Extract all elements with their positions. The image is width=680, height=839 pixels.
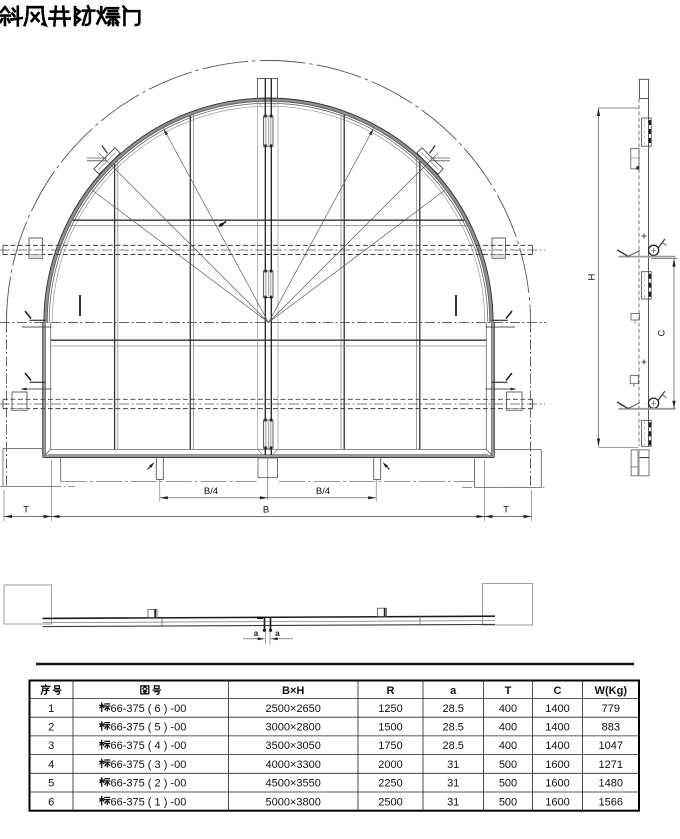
svg-text:1: 1 (48, 703, 54, 715)
svg-text:883: 883 (602, 722, 620, 734)
svg-text:B/4: B/4 (316, 486, 330, 497)
svg-text:400: 400 (499, 703, 517, 715)
svg-text:28.5: 28.5 (442, 703, 463, 715)
svg-text:4000×3300: 4000×3300 (266, 759, 321, 771)
svg-text:5000×3800: 5000×3800 (266, 796, 321, 808)
svg-text:4500×3550: 4500×3550 (266, 778, 321, 790)
svg-text:1400: 1400 (545, 722, 569, 734)
svg-text:3500×3050: 3500×3050 (266, 740, 321, 752)
svg-text:4: 4 (48, 759, 54, 771)
svg-text:B: B (263, 505, 269, 516)
svg-text:3000×2800: 3000×2800 (266, 722, 321, 734)
svg-text:T: T (23, 505, 29, 516)
svg-text:W(Kg): W(Kg) (595, 685, 628, 697)
svg-text:H: H (587, 273, 598, 280)
svg-text:66-375 ( 3 ) -00: 66-375 ( 3 ) -00 (111, 759, 187, 771)
svg-text:T: T (503, 505, 509, 516)
svg-text:1480: 1480 (599, 778, 623, 790)
svg-text:28.5: 28.5 (442, 722, 463, 734)
svg-text:1600: 1600 (545, 778, 569, 790)
svg-text:3: 3 (48, 740, 54, 752)
svg-text:66-375 ( 4 ) -00: 66-375 ( 4 ) -00 (111, 740, 187, 752)
svg-text:31: 31 (447, 759, 459, 771)
svg-text:1750: 1750 (378, 740, 402, 752)
svg-text:400: 400 (499, 722, 517, 734)
svg-text:66-375 ( 2 ) -00: 66-375 ( 2 ) -00 (111, 778, 187, 790)
svg-text:31: 31 (447, 796, 459, 808)
svg-text:66-375 ( 5 ) -00: 66-375 ( 5 ) -00 (111, 722, 187, 734)
svg-text:a: a (450, 685, 457, 697)
svg-text:a: a (275, 629, 280, 638)
svg-text:B×H: B×H (282, 685, 304, 697)
svg-text:1400: 1400 (545, 703, 569, 715)
svg-text:779: 779 (602, 703, 620, 715)
svg-text:T: T (505, 685, 512, 697)
svg-text:500: 500 (499, 796, 517, 808)
svg-text:1250: 1250 (378, 703, 402, 715)
svg-text:2: 2 (48, 722, 54, 734)
svg-text:66-375 ( 1 ) -00: 66-375 ( 1 ) -00 (111, 796, 187, 808)
svg-text:2250: 2250 (378, 778, 402, 790)
svg-text:C: C (554, 685, 562, 697)
svg-text:6: 6 (48, 796, 54, 808)
svg-text:1271: 1271 (599, 759, 623, 771)
svg-text:1500: 1500 (378, 722, 402, 734)
svg-text:400: 400 (499, 740, 517, 752)
svg-text:28.5: 28.5 (442, 740, 463, 752)
svg-text:500: 500 (499, 759, 517, 771)
svg-text:1566: 1566 (599, 796, 623, 808)
svg-text:1600: 1600 (545, 759, 569, 771)
svg-text:5: 5 (48, 778, 54, 790)
svg-text:R: R (387, 685, 395, 697)
svg-text:1600: 1600 (545, 796, 569, 808)
svg-text:2500: 2500 (378, 796, 402, 808)
svg-text:31: 31 (447, 778, 459, 790)
svg-text:B/4: B/4 (204, 486, 218, 497)
svg-text:1047: 1047 (599, 740, 623, 752)
svg-text:66-375 ( 6 ) -00: 66-375 ( 6 ) -00 (111, 703, 187, 715)
svg-text:1400: 1400 (545, 740, 569, 752)
svg-text:C: C (657, 329, 668, 336)
svg-text:2500×2650: 2500×2650 (266, 703, 321, 715)
svg-text:a: a (254, 629, 259, 638)
svg-text:2000: 2000 (378, 759, 402, 771)
svg-text:500: 500 (499, 778, 517, 790)
